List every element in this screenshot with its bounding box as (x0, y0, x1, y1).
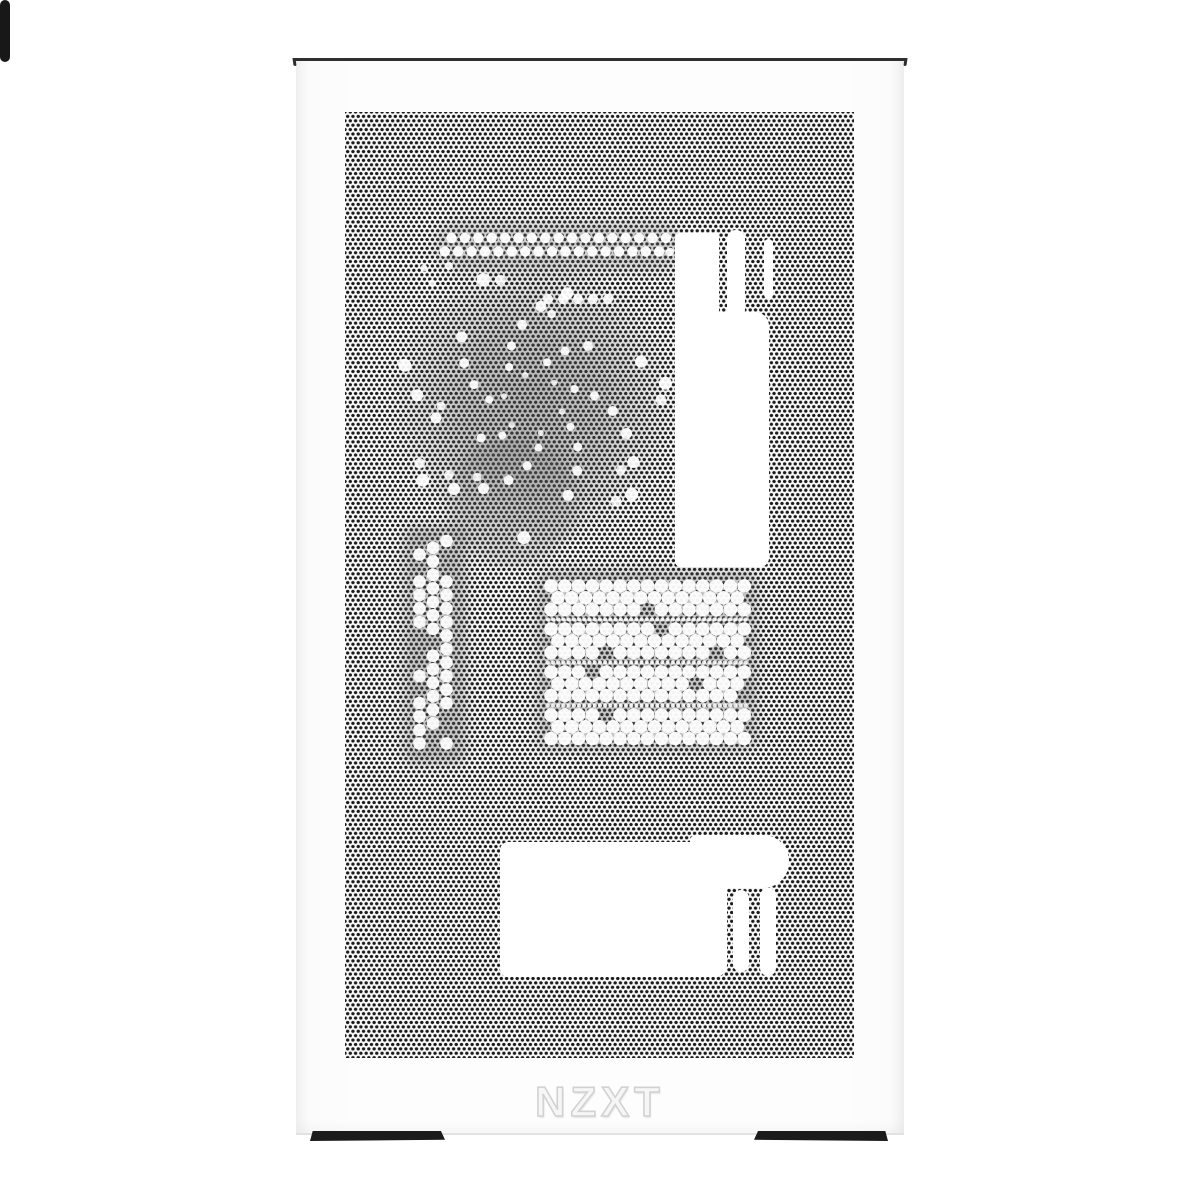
psu-vent-slot (760, 888, 776, 976)
case-foot-left (310, 1131, 445, 1141)
product-photo: NZXT (0, 0, 1200, 1200)
case-foot-right (754, 1131, 888, 1141)
thumbscrew-slot-ring (727, 230, 745, 319)
panel-top-edge (293, 58, 907, 61)
psu-shroud-arm (690, 835, 789, 888)
vent-slit (764, 239, 773, 299)
psu-vent-slot (733, 890, 749, 972)
thumbscrew-slot (0, 0, 10, 62)
rear-io-cutout-lower (675, 312, 769, 567)
nzxt-logo: NZXT (296, 1078, 904, 1126)
